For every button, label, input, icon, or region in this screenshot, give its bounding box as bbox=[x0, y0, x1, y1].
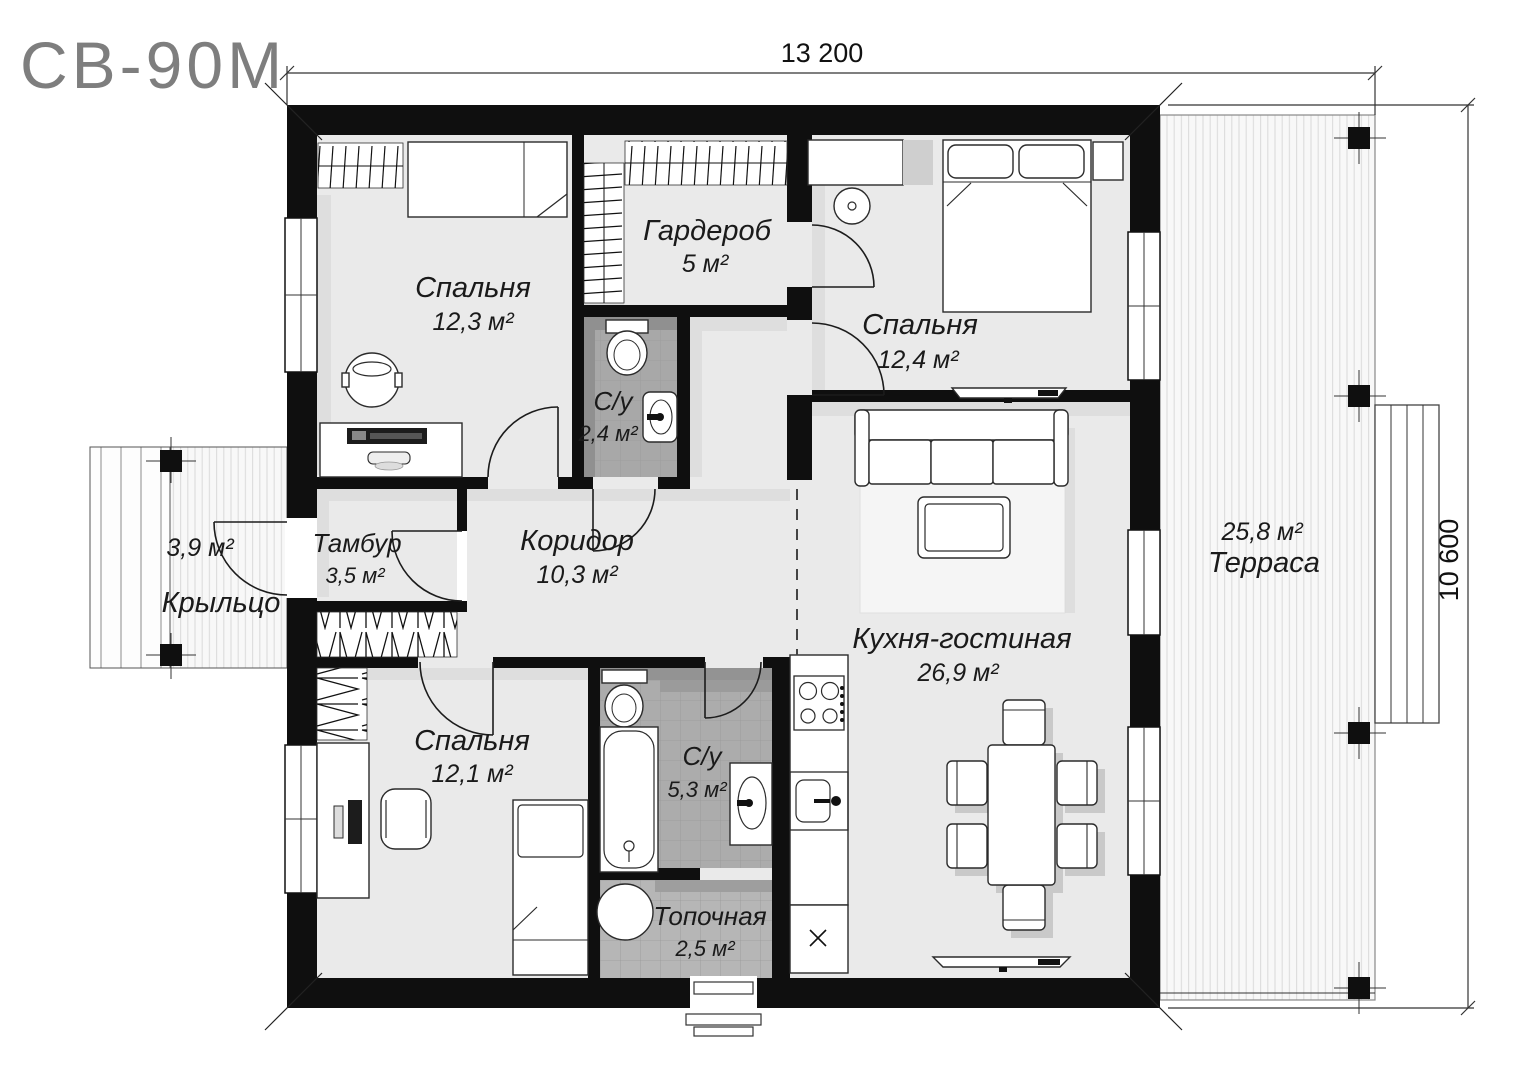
desk bbox=[317, 743, 369, 898]
window bbox=[1128, 727, 1160, 875]
window bbox=[1128, 530, 1160, 635]
bathtub bbox=[600, 727, 658, 872]
label-boiler-name: Топочная bbox=[653, 901, 766, 931]
terrace-post bbox=[1348, 722, 1370, 744]
fridge bbox=[790, 905, 848, 973]
dimension-width: 13 200 bbox=[781, 38, 864, 68]
label-bathroom-big-name: С/у bbox=[683, 741, 724, 771]
sink bbox=[730, 763, 772, 845]
label-vestibule-area: 3,5 м² bbox=[325, 563, 385, 588]
chair bbox=[381, 789, 431, 849]
wardrobe-cabinet bbox=[808, 140, 903, 185]
label-bedroom2-name: Спальня bbox=[862, 309, 978, 341]
plan-title: СВ-90М bbox=[20, 28, 286, 102]
porch-boards bbox=[90, 447, 170, 668]
chair bbox=[1057, 824, 1097, 868]
label-bedroom3-area: 12,1 м² bbox=[431, 760, 514, 788]
toilet bbox=[607, 331, 647, 375]
toilet-tank bbox=[602, 670, 647, 683]
desk bbox=[320, 423, 462, 477]
porch-post bbox=[160, 644, 182, 666]
label-bedroom1-name: Спальня bbox=[415, 272, 531, 304]
dimension-height: 10 600 bbox=[1434, 519, 1464, 602]
floor-plan-svg: 13 200 10 600 СВ-90М Спальня 12,3 м² Гар… bbox=[0, 0, 1527, 1080]
label-kitchen-name: Кухня-гостиная bbox=[852, 623, 1071, 655]
chair bbox=[1003, 700, 1045, 745]
boiler-room-fixtures bbox=[597, 884, 653, 940]
sofa bbox=[855, 410, 1068, 486]
chair bbox=[947, 761, 987, 805]
window bbox=[1128, 232, 1160, 380]
label-bathroom-small-name: С/у bbox=[594, 386, 635, 416]
vestibule-closet bbox=[317, 612, 457, 657]
terrace-post bbox=[1348, 127, 1370, 149]
label-bedroom3-name: Спальня bbox=[414, 725, 530, 757]
label-bedroom2-area: 12,4 м² bbox=[877, 346, 960, 374]
label-kitchen-area: 26,9 м² bbox=[916, 659, 1000, 687]
toilet bbox=[605, 685, 643, 727]
wardrobe-hatch-top bbox=[625, 141, 787, 185]
floor-plan-page: 13 200 10 600 СВ-90М Спальня 12,3 м² Гар… bbox=[0, 0, 1527, 1080]
dining-table bbox=[988, 745, 1055, 885]
coffee-table bbox=[918, 497, 1010, 558]
label-boiler-area: 2,5 м² bbox=[674, 936, 735, 961]
boiler bbox=[597, 884, 653, 940]
bedroom3-closet bbox=[317, 668, 367, 740]
chair bbox=[947, 824, 987, 868]
bed bbox=[513, 800, 588, 975]
nightstand bbox=[1093, 142, 1123, 180]
wardrobe-hatch-left bbox=[584, 163, 624, 303]
bed bbox=[408, 142, 567, 217]
label-corridor-area: 10,3 м² bbox=[536, 561, 619, 589]
label-bathroom-big-area: 5,3 м² bbox=[667, 777, 727, 802]
label-vestibule-name: Тамбур bbox=[312, 528, 401, 558]
label-wardrobe-area: 5 м² bbox=[682, 250, 730, 278]
boiler-exterior-door bbox=[686, 976, 761, 1036]
porch-post bbox=[160, 450, 182, 472]
label-porch-area: 3,9 м² bbox=[166, 534, 235, 562]
sink bbox=[643, 392, 677, 442]
terrace-post bbox=[1348, 977, 1370, 999]
bedroom1-closet bbox=[318, 143, 403, 188]
label-bathroom-small-area: 2,4 м² bbox=[577, 421, 638, 446]
label-wardrobe-name: Гардероб bbox=[643, 215, 772, 247]
window bbox=[285, 745, 317, 893]
label-porch-name: Крыльцо bbox=[162, 587, 281, 619]
chair bbox=[1057, 761, 1097, 805]
label-bedroom1-area: 12,3 м² bbox=[432, 308, 515, 336]
chair bbox=[1003, 885, 1045, 930]
terrace-post bbox=[1348, 385, 1370, 407]
window bbox=[285, 218, 317, 372]
label-corridor-name: Коридор bbox=[520, 525, 634, 557]
plant-pot bbox=[345, 353, 399, 407]
double-bed bbox=[943, 140, 1091, 312]
label-terrace-name: Терраса bbox=[1208, 547, 1320, 579]
fan bbox=[834, 188, 870, 224]
label-terrace-area: 25,8 м² bbox=[1220, 518, 1304, 546]
